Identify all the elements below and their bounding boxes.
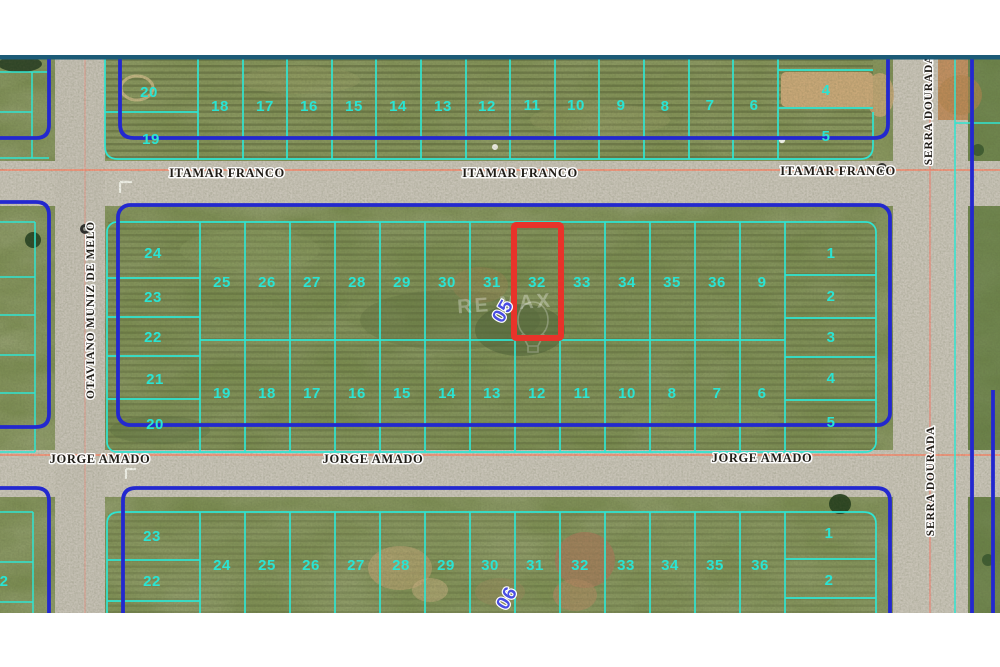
lot-number: 30 — [481, 557, 499, 574]
lot-number: 19 — [142, 131, 160, 148]
lot-number: 15 — [345, 98, 363, 115]
photo-top-edge — [0, 55, 1000, 60]
lot-number: 22 — [144, 329, 162, 346]
lot-number: 33 — [573, 274, 591, 291]
lot-number: 33 — [617, 557, 635, 574]
lot-number: 14 — [389, 98, 407, 115]
lot-number: 16 — [300, 98, 318, 115]
lot-number: 28 — [348, 274, 366, 291]
lot-number: 23 — [143, 528, 161, 545]
lot-number: 10 — [567, 97, 585, 114]
lot-number: 17 — [256, 98, 274, 115]
lot-number: 15 — [393, 385, 411, 402]
lot-number: 25 — [213, 274, 231, 291]
street-label-otaviano-muniz-de-melo: OTAVIANO MUNIZ DE MELO — [85, 221, 97, 399]
lot-number: 30 — [438, 274, 456, 291]
lot-number: 20 — [140, 84, 158, 101]
lot-number: 25 — [258, 557, 276, 574]
lot-number: 10 — [618, 385, 636, 402]
lot-number: 12 — [528, 385, 546, 402]
lot-number: 22 — [143, 573, 161, 590]
lot-number: 14 — [438, 385, 456, 402]
street-label-itamar-franco: ITAMAR FRANCO — [169, 166, 285, 180]
lot-number: 1 — [827, 245, 836, 262]
lot-number: 27 — [347, 557, 365, 574]
lot-number: 12 — [478, 98, 496, 115]
lot-number: 19 — [213, 385, 231, 402]
lot-number: 18 — [258, 385, 276, 402]
lot-number: 35 — [663, 274, 681, 291]
lot-number: 24 — [144, 245, 162, 262]
lot-number: 6 — [758, 385, 767, 402]
lot-number: 34 — [618, 274, 636, 291]
lot-number: 23 — [144, 289, 162, 306]
aerial-lot-map[interactable]: RE MAX 20 19 18 17 16 15 14 13 12 11 10 … — [0, 0, 1000, 667]
lot-number: 26 — [258, 274, 276, 291]
lot-number: 32 — [571, 557, 589, 574]
lot-number: 16 — [348, 385, 366, 402]
lot-number: 7 — [706, 97, 715, 114]
lot-number: 7 — [713, 385, 722, 402]
lot-number: 3 — [827, 329, 836, 346]
lot-number: 2 — [825, 572, 834, 589]
lot-number: 1 — [825, 525, 834, 542]
lot-number: 29 — [437, 557, 455, 574]
lot-number: 9 — [758, 274, 767, 291]
lot-number: 11 — [524, 97, 541, 114]
lot-number: 29 — [393, 274, 411, 291]
lot-number: 18 — [211, 98, 229, 115]
lot-number: 26 — [302, 557, 320, 574]
street-label-serra-dourada: SERRA DOURADA — [925, 426, 937, 536]
lot-number: 34 — [661, 557, 679, 574]
lot-number: 6 — [750, 97, 759, 114]
lot-number: 31 — [526, 557, 544, 574]
lot-number: 13 — [483, 385, 501, 402]
lot-number: 5 — [822, 128, 831, 145]
street-label-itamar-franco: ITAMAR FRANCO — [462, 166, 578, 180]
street-label-itamar-franco: ITAMAR FRANCO — [780, 164, 896, 178]
lot-number: 4 — [822, 82, 831, 99]
lot-number: 8 — [661, 98, 670, 115]
lot-number: 11 — [574, 385, 591, 402]
lot-number: 35 — [706, 557, 724, 574]
lot-number: 2 — [827, 288, 836, 305]
street-label-jorge-amado: JORGE AMADO — [50, 452, 151, 466]
lot-number: 8 — [668, 385, 677, 402]
lot-number: 20 — [146, 416, 164, 433]
street-label-jorge-amado: JORGE AMADO — [712, 451, 813, 465]
lot-number: 36 — [708, 274, 726, 291]
lot-number: 24 — [213, 557, 231, 574]
lot-number: 2 — [0, 573, 8, 590]
lot-number: 9 — [617, 97, 626, 114]
lot-number-highlighted: 32 — [528, 274, 546, 291]
lot-number: 17 — [303, 385, 321, 402]
lot-number: 4 — [827, 370, 836, 387]
lot-number: 36 — [751, 557, 769, 574]
lot-number: 31 — [483, 274, 501, 291]
lot-number: 13 — [434, 98, 452, 115]
lot-number: 27 — [303, 274, 321, 291]
lot-number: 28 — [392, 557, 410, 574]
screenshot: RE MAX 20 19 18 17 16 15 14 13 12 11 10 … — [0, 0, 1000, 667]
street-label-serra-dourada: SERRA DOURADA — [923, 55, 935, 165]
street-label-jorge-amado: JORGE AMADO — [323, 452, 424, 466]
lot-number: 21 — [146, 371, 164, 388]
lot-number: 5 — [827, 414, 836, 431]
